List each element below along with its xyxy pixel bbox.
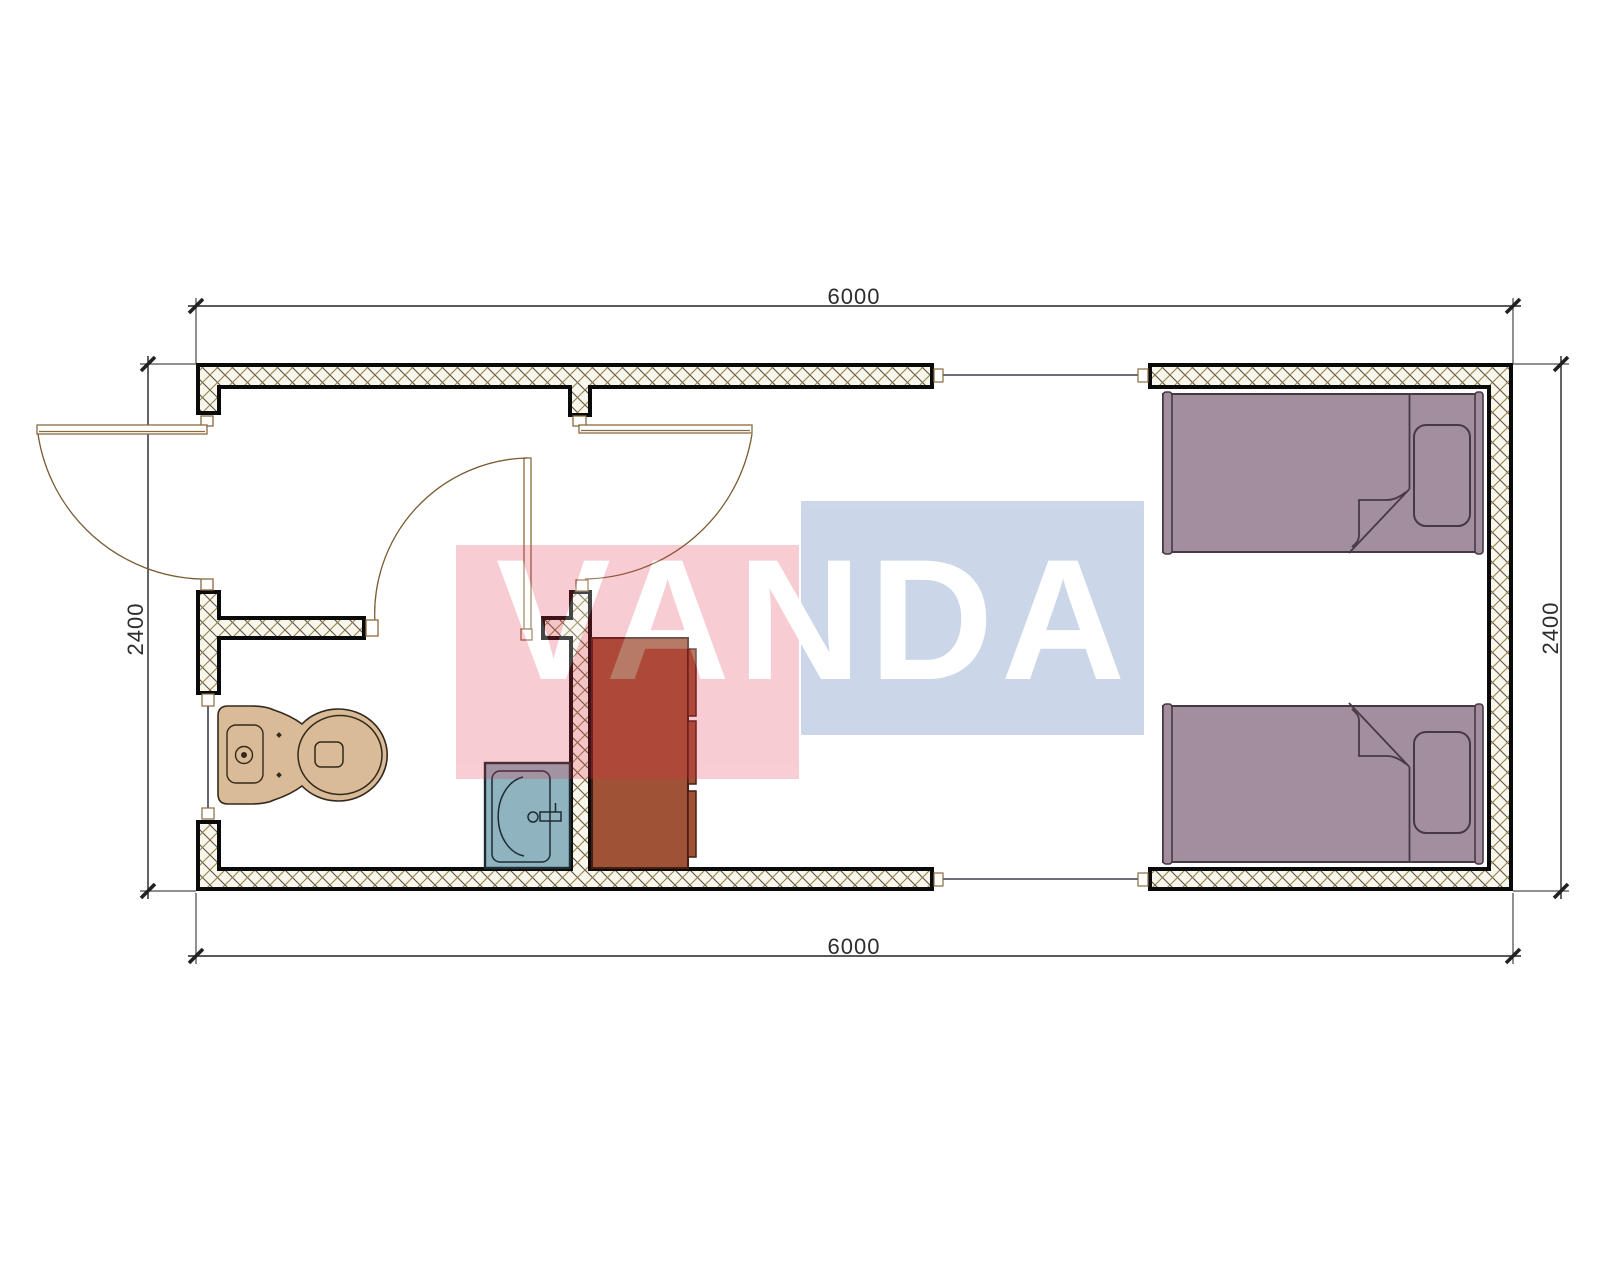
svg-text:6000: 6000 — [828, 284, 881, 309]
svg-text:6000: 6000 — [828, 934, 881, 959]
svg-text:VANDA: VANDA — [496, 524, 1133, 716]
svg-text:2400: 2400 — [1538, 602, 1563, 655]
svg-text:2400: 2400 — [123, 603, 148, 656]
